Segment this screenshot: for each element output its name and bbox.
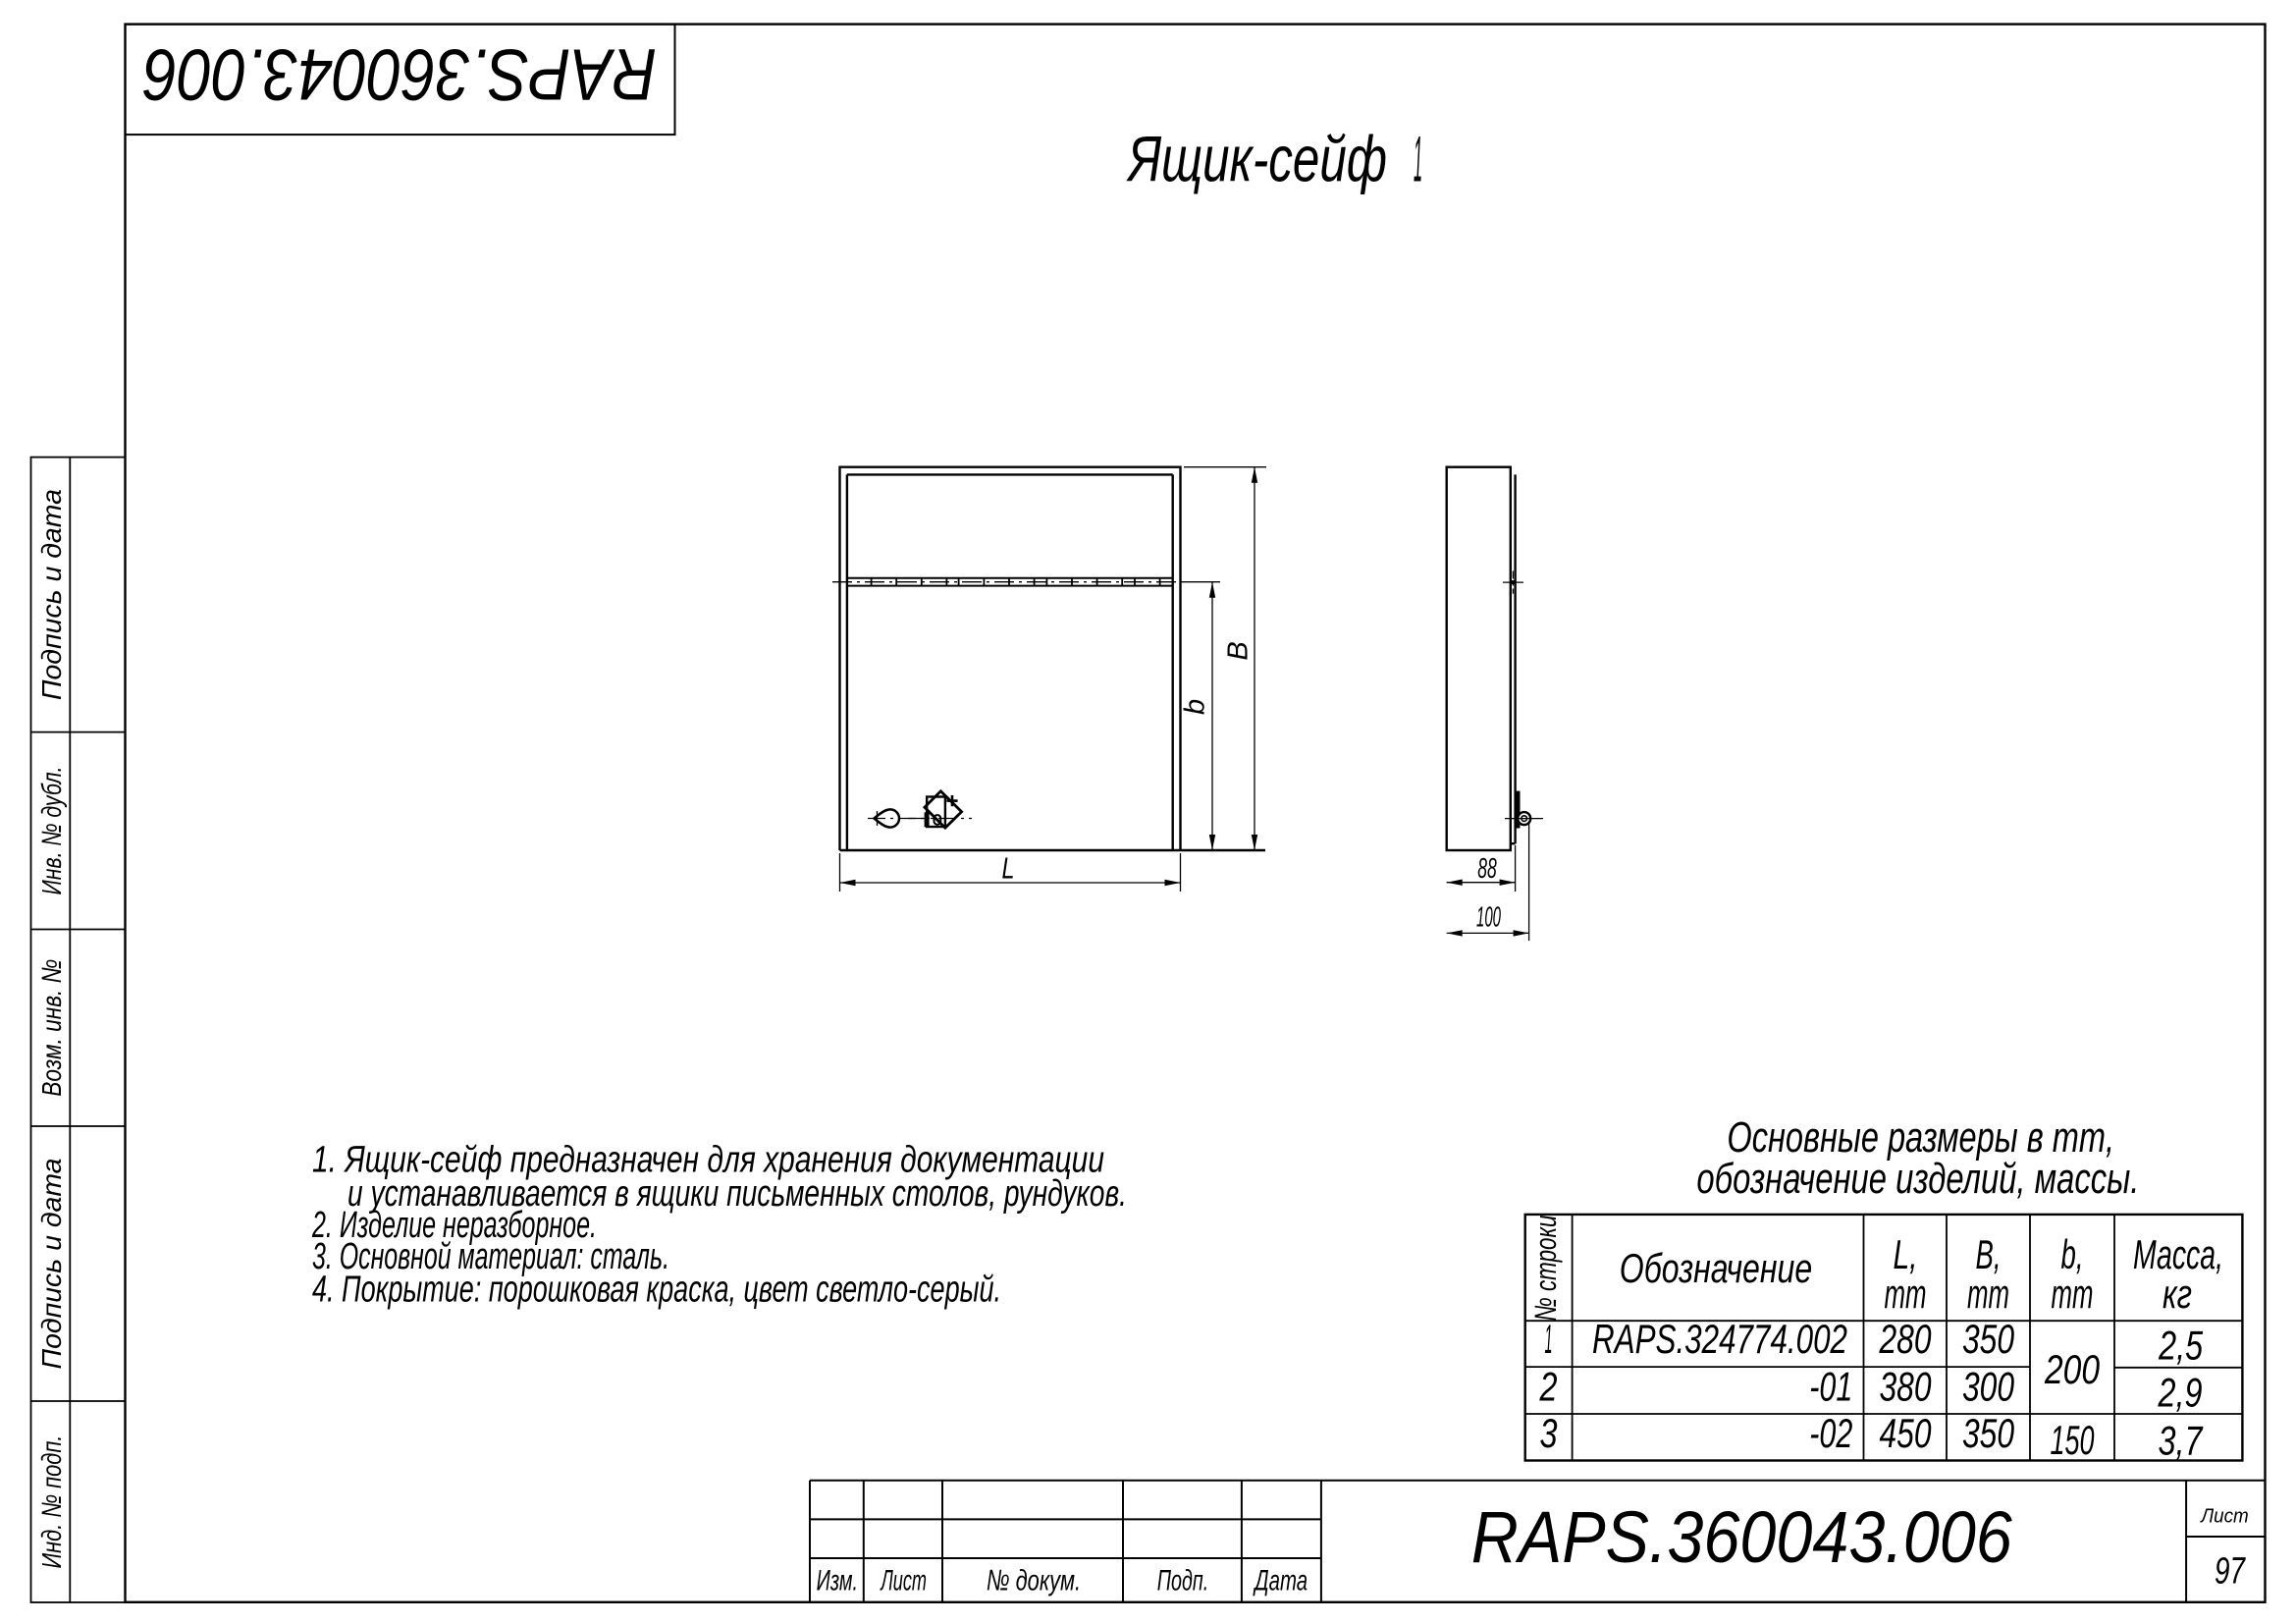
svg-text:350: 350	[1962, 1410, 2014, 1456]
svg-text:Изм.: Изм.	[817, 1565, 858, 1597]
svg-text:Возм. инв. №: Возм. инв. №	[36, 959, 67, 1097]
svg-text:380: 380	[1880, 1364, 1932, 1410]
svg-text:Подпись и дата: Подпись и дата	[36, 489, 67, 700]
svg-text:mm: mm	[1885, 1271, 1927, 1317]
svg-text:4. Покрытие: порошковая краска: 4. Покрытие: порошковая краска, цвет све…	[312, 1270, 1001, 1311]
svg-text:1: 1	[1545, 1316, 1553, 1362]
svg-text:2,5: 2,5	[2158, 1323, 2203, 1369]
svg-text:88: 88	[1477, 853, 1497, 885]
svg-text:b: b	[1179, 699, 1210, 715]
svg-text:обозначение изделий, массы.: обозначение изделий, массы.	[1696, 1155, 2139, 1203]
svg-text:200: 200	[2044, 1346, 2100, 1392]
svg-text:Лист: Лист	[2199, 1506, 2248, 1528]
svg-text:280: 280	[1879, 1316, 1932, 1362]
svg-text:2,9: 2,9	[2158, 1370, 2203, 1416]
svg-text:Подп.: Подп.	[1157, 1565, 1208, 1597]
svg-text:RAPS.360043.006: RAPS.360043.006	[142, 34, 657, 116]
svg-text:300: 300	[1962, 1364, 2014, 1410]
svg-text:mm: mm	[2052, 1271, 2094, 1317]
svg-text:3: 3	[1540, 1410, 1558, 1456]
svg-text:350: 350	[1962, 1316, 2014, 1362]
svg-text:150: 150	[2051, 1417, 2095, 1463]
svg-text:B: B	[1223, 641, 1255, 660]
svg-text:Инв. № дубл.: Инв. № дубл.	[36, 767, 67, 895]
svg-text:Обозначение: Обозначение	[1620, 1245, 1812, 1291]
svg-text:RAPS.360043.006: RAPS.360043.006	[1471, 1496, 2013, 1578]
svg-text:Ящик-сейф: Ящик-сейф	[1126, 122, 1387, 194]
svg-text:RAPS.324774.002: RAPS.324774.002	[1592, 1316, 1847, 1362]
svg-text:№ докум.: № докум.	[987, 1565, 1081, 1597]
svg-text:100: 100	[1476, 902, 1501, 934]
svg-text:№ строки: № строки	[1528, 1216, 1563, 1322]
svg-text:кг: кг	[2163, 1271, 2192, 1317]
svg-text:Лист: Лист	[880, 1565, 927, 1597]
svg-text:L: L	[1002, 851, 1015, 886]
svg-text:2: 2	[1539, 1364, 1558, 1410]
svg-text:3,7: 3,7	[2159, 1418, 2204, 1464]
svg-text:-01: -01	[1809, 1364, 1852, 1410]
svg-text:97: 97	[2215, 1550, 2246, 1592]
svg-text:1: 1	[1414, 122, 1422, 194]
svg-text:mm: mm	[1967, 1271, 2009, 1317]
svg-text:-02: -02	[1809, 1410, 1852, 1456]
svg-text:450: 450	[1880, 1410, 1932, 1456]
svg-text:Подпись и дата: Подпись и дата	[36, 1159, 67, 1370]
svg-text:Инд. № подп.: Инд. № подп.	[36, 1435, 67, 1569]
svg-text:Дата: Дата	[1253, 1565, 1308, 1597]
